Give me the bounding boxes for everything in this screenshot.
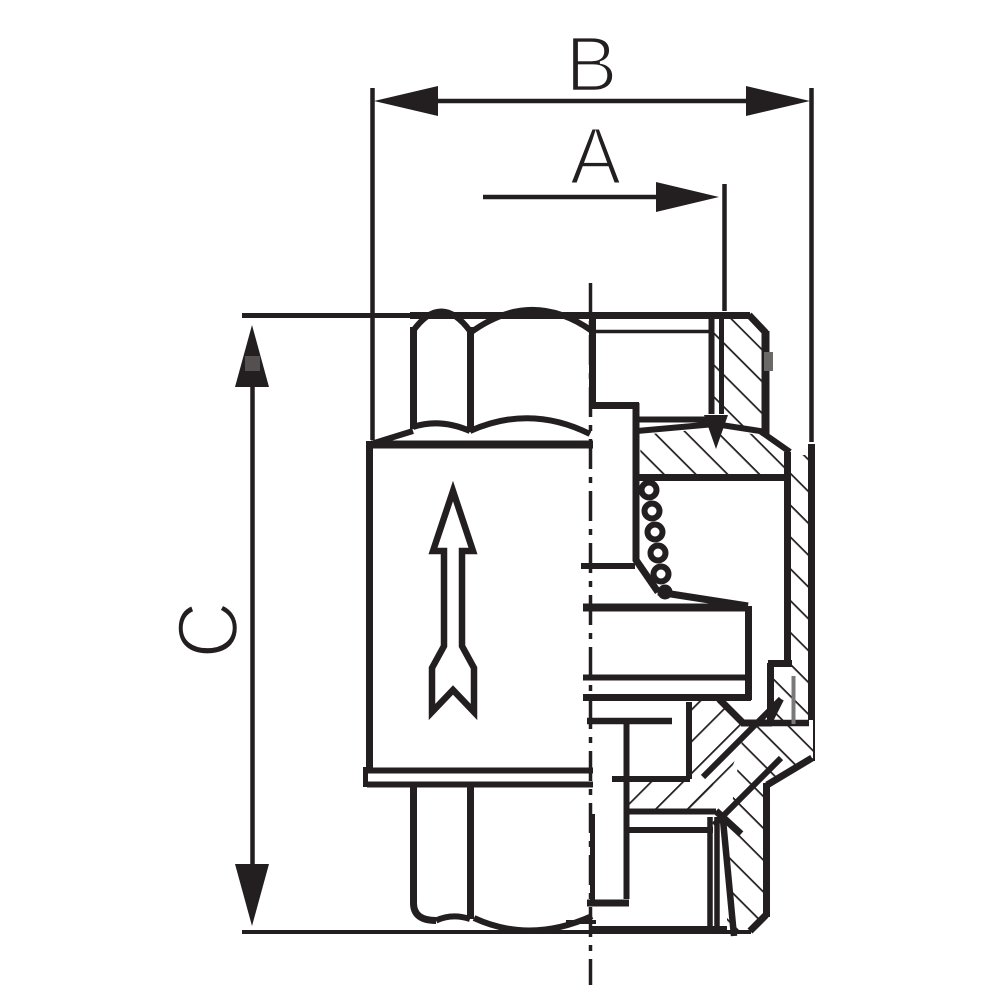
svg-text:B: B xyxy=(565,20,617,108)
svg-text:C: C xyxy=(161,601,255,658)
svg-text:A: A xyxy=(570,110,622,201)
